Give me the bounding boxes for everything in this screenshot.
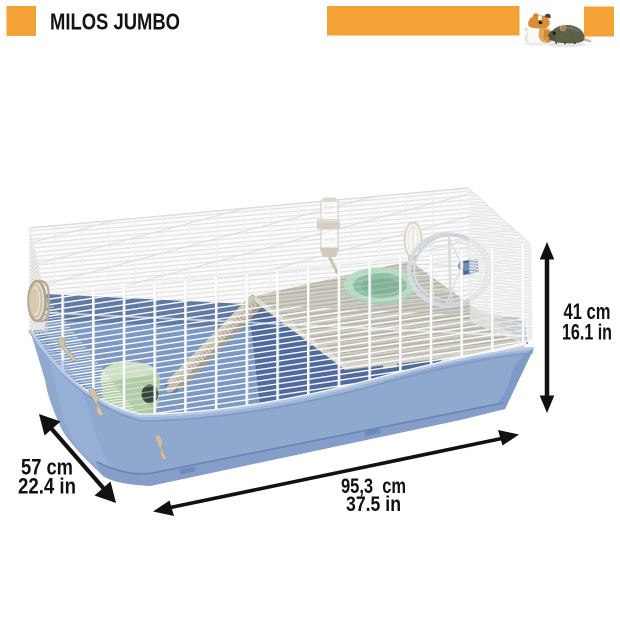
svg-text:16.1 in: 16.1 in	[562, 320, 612, 345]
svg-text:22.4 in: 22.4 in	[18, 474, 76, 499]
svg-text:37.5 in: 37.5 in	[346, 493, 401, 516]
svg-text:MILOS JUMBO: MILOS JUMBO	[50, 9, 180, 35]
